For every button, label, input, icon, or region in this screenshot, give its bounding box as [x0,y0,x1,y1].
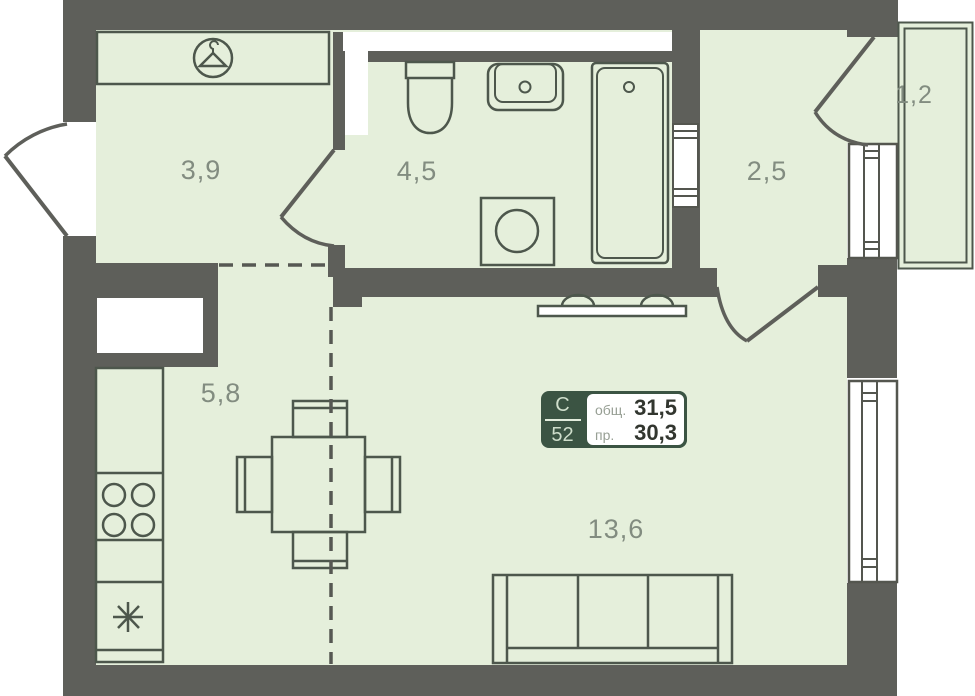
entrance-door [5,124,67,236]
apartment-areas-panel: общ. 31,5 пр. 30,3 [584,391,687,448]
total-area-value: 31,5 [633,395,677,421]
living-area-value: 30,3 [633,420,677,446]
room-label-kitchen: 5,8 [176,378,266,409]
shaft-gap [343,32,672,51]
wall-segment [63,0,898,30]
wall-segment [63,665,897,696]
wall-segment [818,265,848,297]
apartment-floor-plan: 3,9 4,5 2,5 1,2 5,8 13,6 С 52 общ. 31,5 … [0,0,975,696]
wall-segment [672,30,700,270]
room-label-loggia: 1,2 [869,81,959,110]
wall-segment [847,3,898,37]
room-label-dressing: 3,9 [156,155,246,186]
apartment-type-letter: С [555,394,569,416]
apartment-info-box: С 52 общ. 31,5 пр. 30,3 [541,391,687,448]
wall-segment [333,268,717,297]
window-hallway-loggia [849,144,897,258]
wall-segment [63,0,96,122]
wall-segment [847,583,897,696]
room-label-hallway: 2,5 [722,156,812,187]
total-area-label: общ. [595,402,633,418]
wall-segment [368,50,672,62]
window-living [849,381,897,582]
apartment-type-panel: С 52 [541,391,584,448]
shaft-gap [345,32,368,135]
duct-niche [97,298,203,353]
wall-segment [847,258,897,378]
wall-segment [328,245,345,277]
living-area-label: пр. [595,427,633,443]
apartment-number: 52 [551,424,573,446]
divider [545,419,581,421]
total-area-row: общ. 31,5 [595,395,677,420]
wall-segment [333,295,362,307]
living-area-row: пр. 30,3 [595,420,677,445]
room-label-bathroom: 4,5 [372,156,462,187]
room-label-living: 13,6 [571,514,661,545]
floor-loggia [898,22,973,269]
